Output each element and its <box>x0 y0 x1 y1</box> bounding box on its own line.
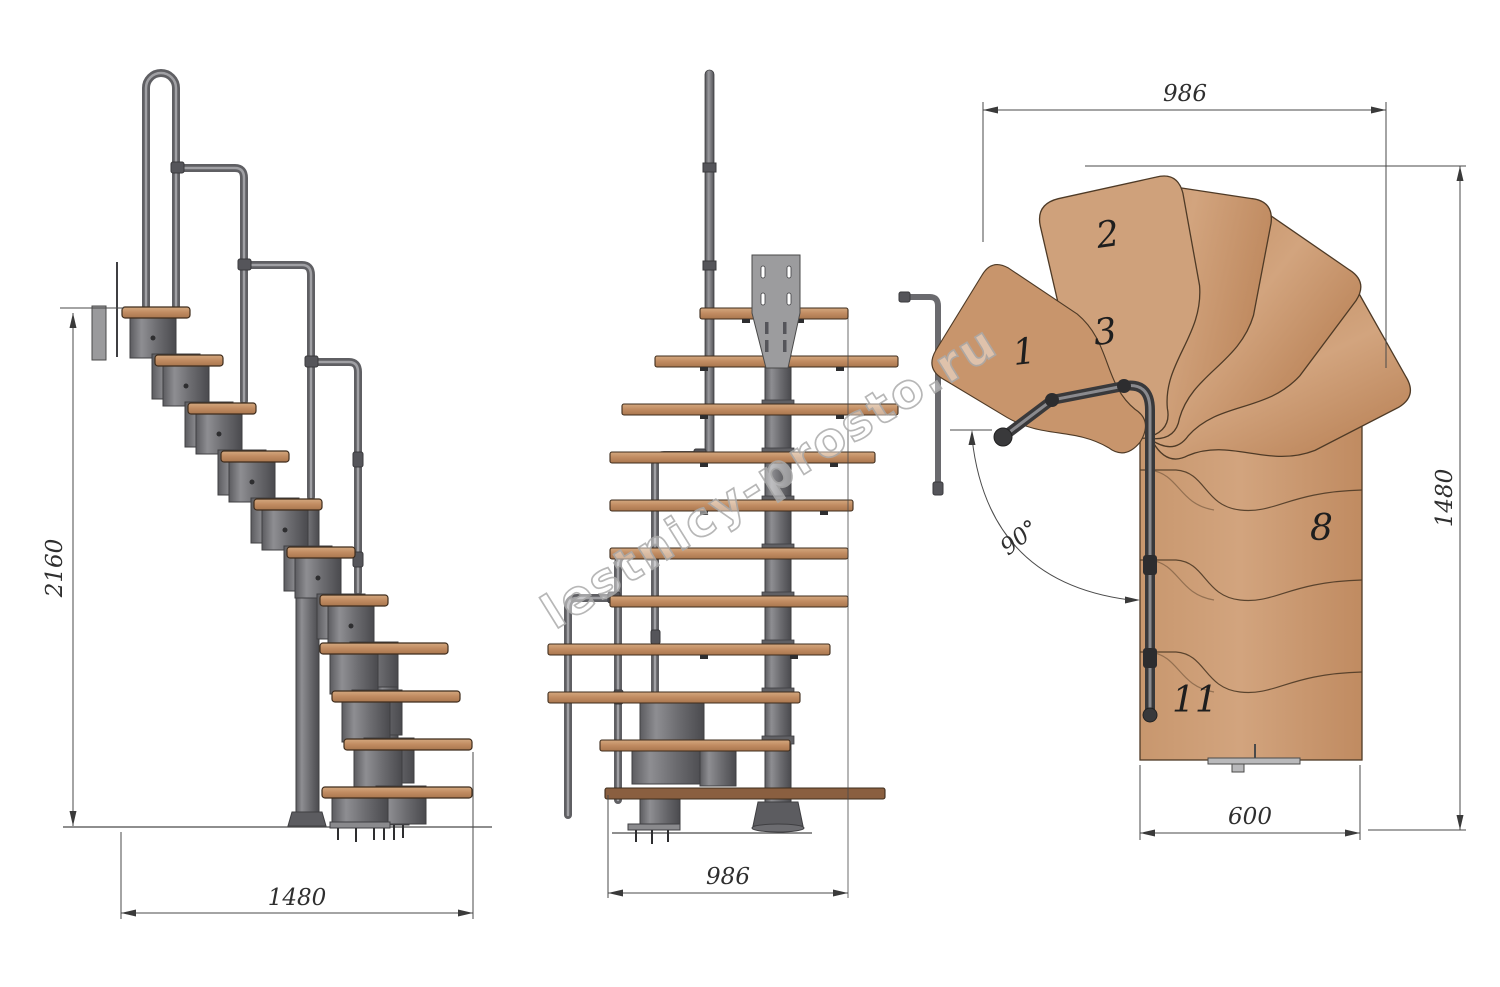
tread-label-3: 3 <box>1092 311 1119 354</box>
staircase-technical-drawing: 2160 1480 <box>0 0 1500 987</box>
tread-label-1: 1 <box>1011 331 1038 374</box>
dim-label-986-front: 986 <box>706 864 750 890</box>
dim-label-1480-plan: 1480 <box>1432 469 1458 528</box>
rail-clamp <box>171 162 184 173</box>
front-lower-modules <box>632 700 736 824</box>
dim-label-600: 600 <box>1228 804 1272 830</box>
front-mast <box>703 70 716 458</box>
dim-plan-bottom: 600 <box>1140 765 1360 840</box>
dim-plan-angle: 90° <box>950 430 1140 604</box>
rail-sleeve <box>353 452 363 467</box>
front-center-column <box>752 352 804 832</box>
rail-clamp <box>305 356 318 367</box>
front-base-plate <box>628 824 680 830</box>
tread-label-8: 8 <box>1310 508 1333 549</box>
wall-plate <box>92 306 106 360</box>
dim-label-2160: 2160 <box>42 539 68 599</box>
dim-label-90deg: 90° <box>996 515 1044 561</box>
dim-label-986-plan: 986 <box>1163 81 1207 107</box>
front-base-bolts <box>636 830 668 844</box>
top-plan-view: 1 2 3 8 11 986 1480 <box>920 81 1466 840</box>
dim-label-1480-side: 1480 <box>268 885 327 911</box>
dim-side-height: 2160 <box>42 308 124 826</box>
side-elevation-view: 2160 1480 <box>42 73 492 919</box>
rail-clamp <box>238 259 251 270</box>
tread-label-11: 11 <box>1172 680 1218 721</box>
front-mounting-plate <box>752 255 800 368</box>
drawing-page: 2160 1480 <box>0 0 1500 987</box>
